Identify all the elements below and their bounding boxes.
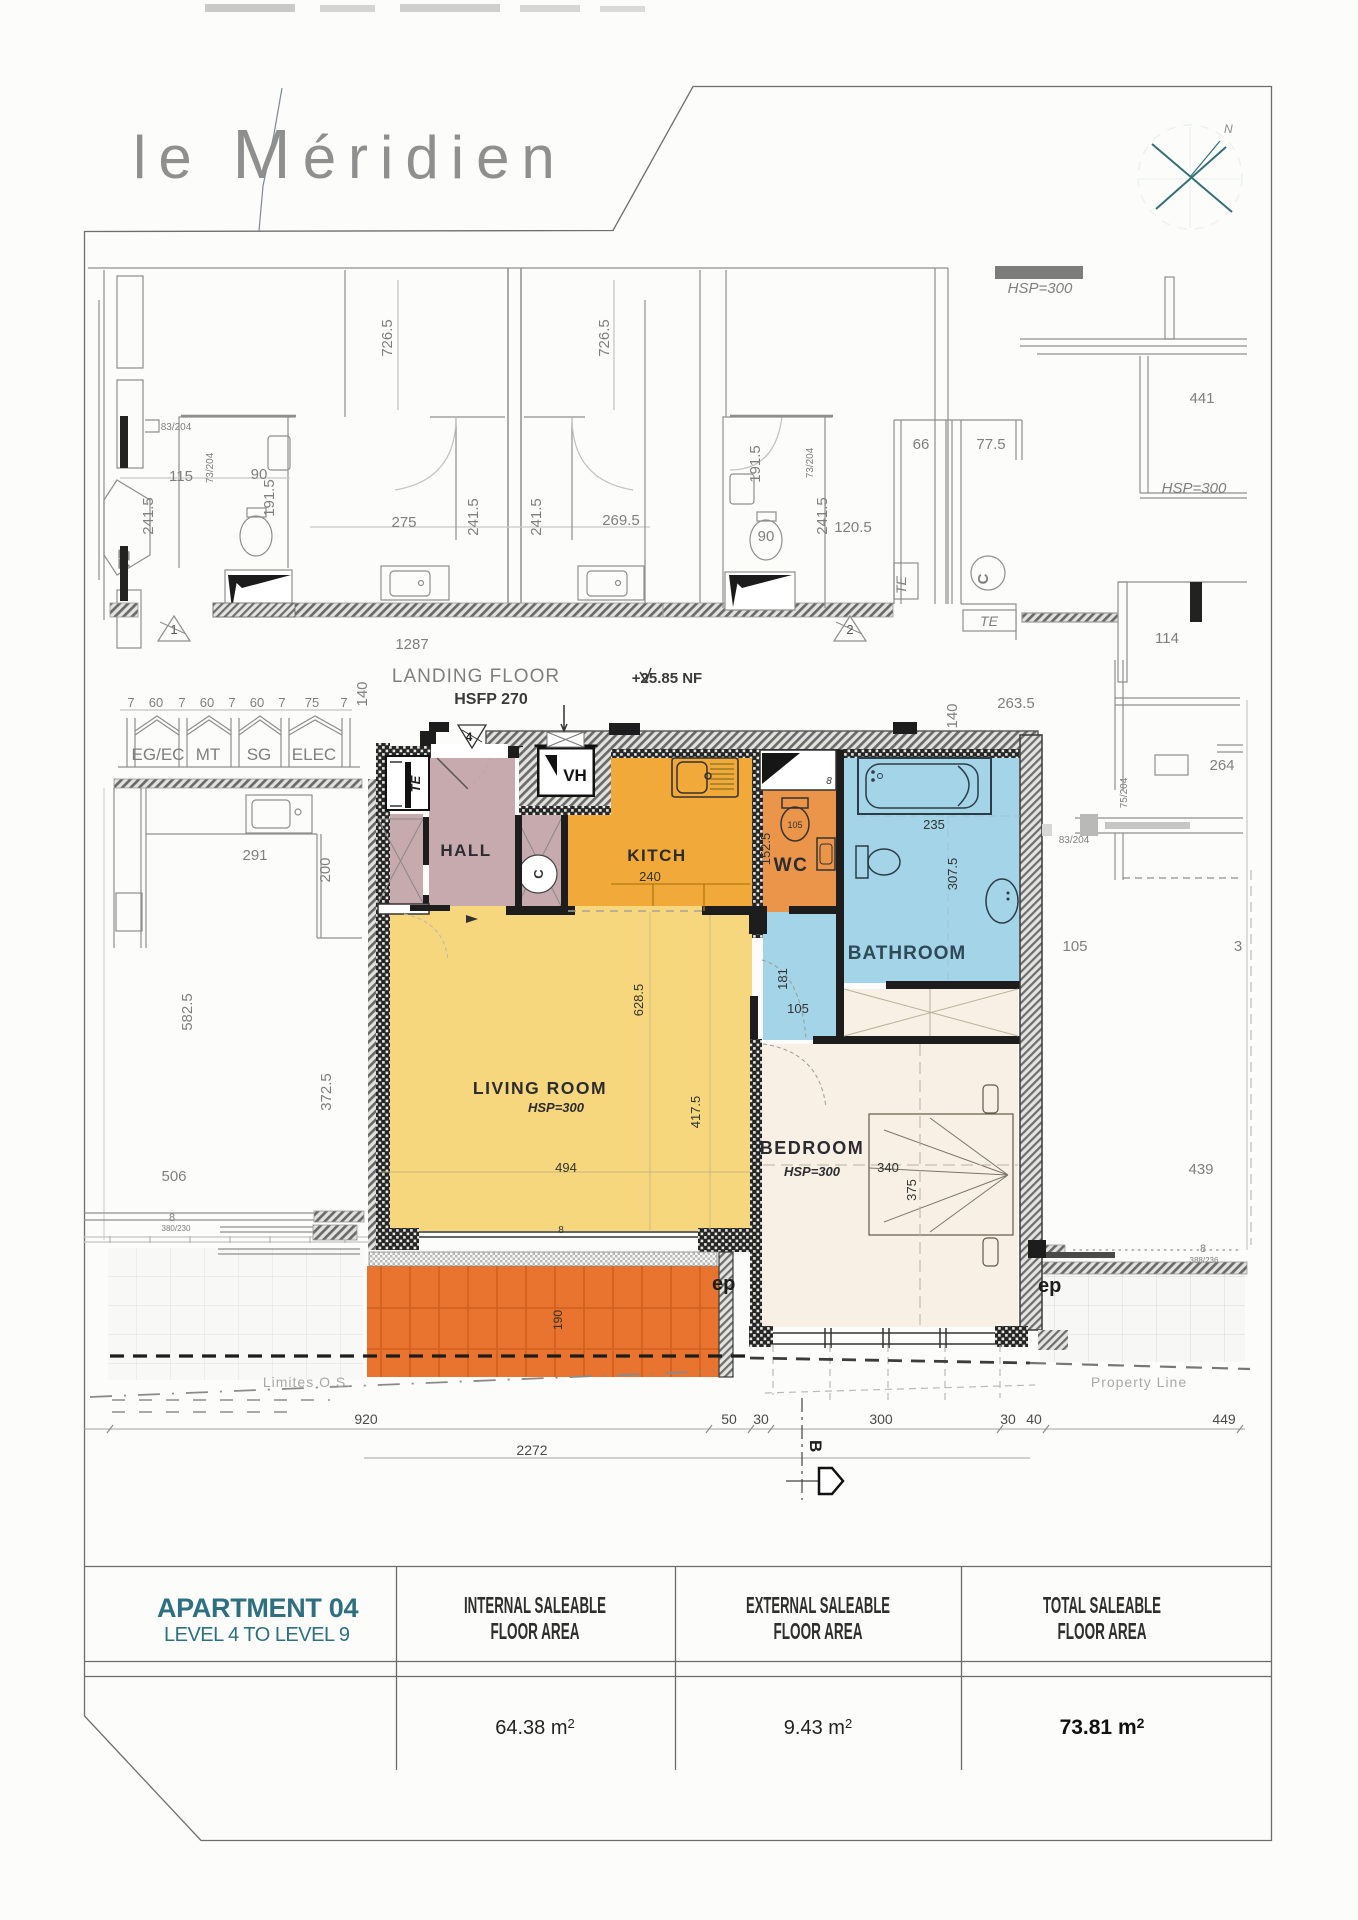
svg-text:ep: ep [1038,1275,1061,1297]
svg-text:191.5: 191.5 [747,445,764,483]
svg-text:VH: VH [563,766,587,785]
svg-text:190: 190 [551,1310,565,1330]
svg-text:7: 7 [278,695,285,710]
svg-text:4: 4 [466,730,473,744]
svg-text:105: 105 [1062,938,1087,955]
svg-text:920: 920 [354,1411,378,1427]
svg-text:340: 340 [877,1160,899,1175]
svg-text:1287: 1287 [395,636,428,653]
svg-text:HSP=300: HSP=300 [1162,480,1227,497]
svg-text:TE: TE [408,775,423,792]
svg-text:EG/EC: EG/EC [132,745,185,764]
svg-text:264: 264 [1209,757,1234,774]
svg-text:ep: ep [712,1273,735,1295]
svg-text:ELEC: ELEC [292,745,336,764]
svg-text:388/236: 388/236 [1190,1256,1219,1265]
svg-text:HSP=300: HSP=300 [784,1164,841,1179]
svg-text:LEVEL 4 TO LEVEL 9: LEVEL 4 TO LEVEL 9 [164,1624,350,1646]
svg-text:152.5: 152.5 [758,833,773,866]
svg-text:64.38 m2: 64.38 m2 [495,1716,575,1739]
svg-text:B: B [806,1440,825,1452]
svg-text:C: C [531,869,546,879]
svg-text:+25.85 NF: +25.85 NF [632,670,702,687]
svg-text:30: 30 [1000,1411,1016,1427]
svg-text:60: 60 [250,695,264,710]
svg-text:N: N [1224,122,1233,136]
svg-text:8: 8 [558,1225,564,1236]
svg-text:372.5: 372.5 [318,1073,335,1111]
svg-text:2272: 2272 [516,1442,547,1458]
svg-text:LANDING FLOOR: LANDING FLOOR [392,666,560,687]
svg-text:181: 181 [775,968,790,990]
svg-text:241.5: 241.5 [465,498,482,536]
svg-text:2: 2 [846,622,853,637]
svg-text:7: 7 [340,695,347,710]
svg-text:240: 240 [639,869,661,884]
svg-text:90: 90 [758,528,775,545]
svg-text:494: 494 [555,1160,577,1175]
svg-text:1: 1 [170,622,177,637]
svg-text:60: 60 [149,695,163,710]
svg-text:83/204: 83/204 [1059,835,1090,846]
svg-text:582.5: 582.5 [179,993,196,1031]
svg-text:75: 75 [305,695,319,710]
svg-text:HSP=300: HSP=300 [1008,280,1073,297]
svg-text:380/230: 380/230 [162,1224,191,1233]
svg-text:191.5: 191.5 [261,479,278,517]
svg-text:FLOOR AREA: FLOOR AREA [1058,1618,1147,1644]
svg-text:8: 8 [1200,1243,1206,1255]
svg-text:269.5: 269.5 [602,512,640,529]
svg-text:291: 291 [242,847,267,864]
svg-text:140: 140 [944,703,961,728]
svg-text:114: 114 [1155,630,1179,647]
svg-text:Limites O.S.: Limites O.S. [263,1374,351,1390]
svg-text:BEDROOM: BEDROOM [760,1138,865,1158]
svg-text:375: 375 [904,1179,919,1201]
svg-text:40: 40 [1026,1411,1042,1427]
svg-text:LIVING ROOM: LIVING ROOM [473,1078,607,1098]
svg-text:50: 50 [721,1411,737,1427]
svg-text:TOTAL SALEABLE: TOTAL SALEABLE [1043,1592,1161,1618]
svg-text:SG: SG [247,745,272,764]
svg-text:66: 66 [913,436,930,453]
svg-text:Property Line: Property Line [1091,1374,1187,1390]
svg-text:HSP=300: HSP=300 [528,1100,585,1115]
svg-text:140: 140 [354,681,371,706]
svg-text:le Méridien: le Méridien [133,115,567,193]
svg-text:7: 7 [178,695,185,710]
svg-text:FLOOR AREA: FLOOR AREA [491,1618,580,1644]
svg-text:FLOOR AREA: FLOOR AREA [774,1618,863,1644]
svg-text:105: 105 [787,820,802,830]
svg-text:200: 200 [317,857,334,882]
svg-text:TE: TE [980,613,999,629]
svg-text:HSFP 270: HSFP 270 [454,691,528,708]
svg-text:8: 8 [826,776,832,787]
svg-text:441: 441 [1189,390,1214,407]
svg-text:9.43 m2: 9.43 m2 [784,1716,852,1739]
svg-text:628.5: 628.5 [631,984,646,1017]
svg-text:TE: TE [893,575,909,594]
svg-text:263.5: 263.5 [997,695,1035,712]
svg-text:241.5: 241.5 [140,497,157,535]
svg-text:BATHROOM: BATHROOM [848,943,966,964]
svg-text:241.5: 241.5 [814,497,831,535]
svg-text:307.5: 307.5 [945,858,960,891]
svg-text:115: 115 [169,468,193,485]
svg-text:60: 60 [200,695,214,710]
svg-text:KITCH: KITCH [627,846,686,865]
svg-text:77.5: 77.5 [976,436,1005,453]
svg-text:241.5: 241.5 [528,498,545,536]
svg-text:449: 449 [1212,1411,1236,1427]
svg-text:MT: MT [196,745,221,764]
svg-text:7: 7 [127,695,134,710]
svg-text:73/204: 73/204 [805,447,816,478]
svg-text:APARTMENT 04: APARTMENT 04 [157,1593,359,1623]
svg-text:WC: WC [774,855,809,876]
svg-text:439: 439 [1188,1161,1213,1178]
svg-text:30: 30 [753,1411,769,1427]
svg-text:83/204: 83/204 [161,422,192,433]
svg-text:417.5: 417.5 [688,1096,703,1129]
svg-text:8: 8 [169,1212,175,1224]
svg-text:120.5: 120.5 [834,519,872,536]
svg-text:HALL: HALL [440,841,491,860]
svg-text:C: C [975,573,992,584]
svg-text:726.5: 726.5 [596,319,613,357]
svg-text:3: 3 [1234,938,1242,955]
svg-text:105: 105 [787,1001,809,1016]
svg-text:726.5: 726.5 [379,319,396,357]
svg-text:EXTERNAL SALEABLE: EXTERNAL SALEABLE [746,1592,890,1618]
svg-text:73.81 m2: 73.81 m2 [1060,1715,1145,1739]
svg-text:235: 235 [923,817,945,832]
svg-text:300: 300 [869,1411,893,1427]
svg-text:73/204: 73/204 [205,452,216,483]
svg-text:275: 275 [391,514,416,531]
svg-text:506: 506 [161,1168,186,1185]
svg-text:7: 7 [228,695,235,710]
svg-text:INTERNAL SALEABLE: INTERNAL SALEABLE [464,1592,606,1618]
svg-text:75/204: 75/204 [1119,777,1130,808]
